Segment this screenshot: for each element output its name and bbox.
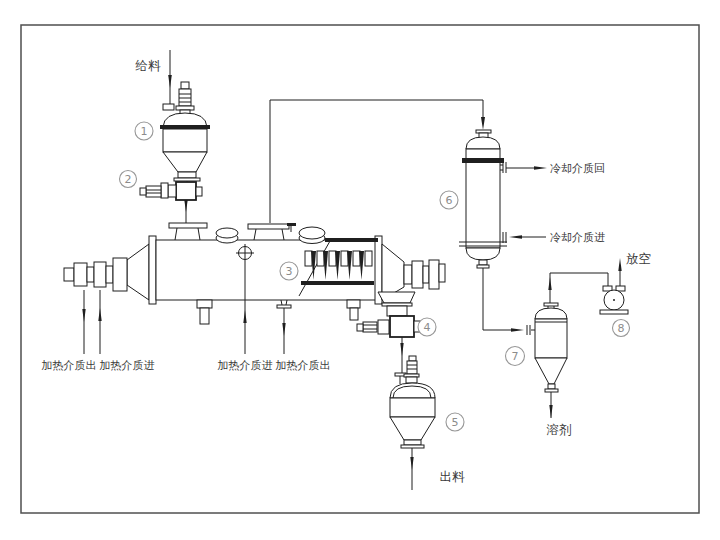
tag-5: 5 [452, 416, 459, 429]
tag-2: 2 [125, 173, 132, 186]
cooling-return-label: 冷却介质回 [550, 162, 605, 175]
tag-1: 1 [141, 125, 148, 138]
feed-hopper [160, 82, 210, 184]
tag-8: 8 [618, 322, 625, 335]
drive-gearbox-icon [113, 258, 127, 291]
motor-icon [146, 186, 161, 197]
motor-icon [407, 361, 417, 374]
tag-4: 4 [424, 321, 431, 334]
tag-6: 6 [446, 194, 453, 207]
process-flow-diagram: 给料 [0, 0, 720, 540]
vacuum-line [548, 273, 608, 303]
drawing-page: 给料 [0, 0, 720, 540]
rotary-valve-feed [140, 182, 202, 226]
receiver-tank: 溶剂 [535, 303, 572, 437]
discharge-label: 出料 [440, 469, 466, 484]
paddle-dryer [64, 223, 445, 324]
heating-in-mid-label: 加热介质进 [218, 359, 273, 372]
heating-out-mid-label: 加热介质出 [276, 359, 331, 372]
solvent-label: 溶剂 [547, 422, 572, 437]
feed-line: 给料 [135, 50, 175, 110]
feed-label: 给料 [135, 58, 162, 73]
condensate-line [483, 268, 535, 335]
tag-7: 7 [512, 350, 519, 363]
tag-3: 3 [286, 265, 293, 278]
motor-icon [363, 322, 377, 332]
vent-label: 放空 [626, 251, 651, 266]
heating-out-left-label: 加热介质出 [42, 359, 97, 372]
condenser: 冷却介质回 冷却介质进 [459, 130, 605, 268]
heating-in-left-label: 加热介质进 [100, 359, 155, 372]
cooling-in-label: 冷却介质进 [550, 231, 605, 244]
tube-sheet [462, 158, 504, 163]
motor-icon [181, 82, 189, 89]
